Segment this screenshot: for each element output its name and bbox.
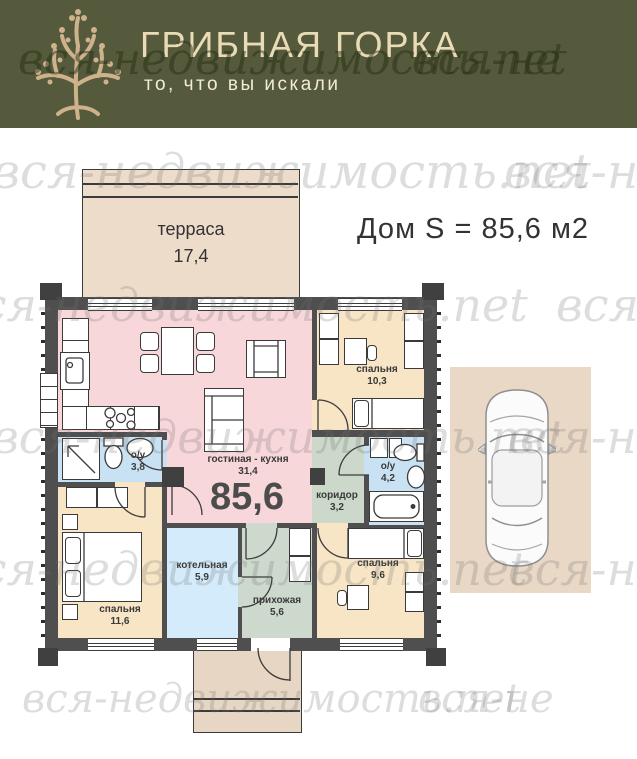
door-opening <box>364 445 369 475</box>
pillow <box>65 537 81 564</box>
wall-post <box>40 283 62 300</box>
dining-table <box>161 327 194 375</box>
room-area: 3,2 <box>316 502 358 514</box>
pillow <box>65 570 81 597</box>
pillow <box>407 530 422 557</box>
site-subtitle: то, что вы искали <box>144 74 341 96</box>
room-area: 3,8 <box>131 462 145 474</box>
desk <box>344 338 367 365</box>
washing-machine <box>370 438 388 458</box>
bathtub <box>369 491 424 522</box>
room-name: прихожая <box>253 595 301 607</box>
nightstand <box>62 604 78 620</box>
room-name: о/у <box>381 461 395 473</box>
door-opening <box>312 437 317 468</box>
porch-area <box>193 649 302 733</box>
wall-pillar <box>310 468 325 485</box>
total-area-label: 85,6 <box>210 476 284 519</box>
car-icon <box>478 386 556 570</box>
door-opening <box>312 400 317 430</box>
room-name: гостиная - кухня <box>207 454 288 466</box>
room-area: 10,3 <box>356 376 398 388</box>
terrace-area-value: 17,4 <box>173 246 208 267</box>
door-opening <box>238 577 242 607</box>
room-area: 5,6 <box>253 607 301 619</box>
room-label-corridor: коридор 3,2 <box>316 490 358 514</box>
plan-title: Дом S = 85,6 м2 <box>332 213 614 246</box>
room-label-hall: прихожая 5,6 <box>253 595 301 619</box>
chair <box>337 590 347 606</box>
chair <box>367 345 377 361</box>
room-name: коридор <box>316 490 358 502</box>
room-label-boiler: котельная 5,9 <box>176 560 227 584</box>
pillow <box>354 400 369 427</box>
room-label-living: гостиная - кухня 31,4 <box>207 454 288 478</box>
terrace-edge-line <box>83 196 298 198</box>
wall-post <box>38 648 58 666</box>
terrace-edge-line <box>83 183 298 185</box>
room-label-bedroom-10-3: спальня 10,3 <box>356 364 398 388</box>
room-label-bedroom-9-6: спальня 9,6 <box>357 558 399 582</box>
window <box>88 638 154 651</box>
window <box>340 638 403 651</box>
nightstand <box>62 514 78 530</box>
room-label-bedroom-11-6: спальня 11,6 <box>99 604 141 628</box>
watermark-fragment: вся-не <box>504 144 637 200</box>
room-label-bathroom-3-8: о/у 3,8 <box>131 450 145 474</box>
room-name: спальня <box>357 558 399 570</box>
window <box>198 298 294 311</box>
wardrobe <box>66 487 97 508</box>
door-opening <box>246 523 277 528</box>
porch-step-line <box>194 710 300 712</box>
header-banner: ГРИБНАЯ ГОРКА то, что вы искали <box>0 0 637 128</box>
armchair <box>246 340 286 378</box>
kitchen-sink <box>60 352 90 390</box>
wardrobe <box>404 341 424 369</box>
watermark-fragment: вся-не <box>556 278 637 332</box>
chair <box>196 332 215 351</box>
wardrobe <box>97 487 128 508</box>
cabinet <box>389 438 402 458</box>
wardrobe <box>405 592 424 612</box>
room-name: спальня <box>356 364 398 376</box>
wall-post <box>422 283 444 300</box>
terrace-label: терраса <box>157 219 224 240</box>
wall-ticks <box>41 312 45 640</box>
chair <box>196 354 215 373</box>
wardrobe <box>405 572 424 592</box>
desk <box>347 585 369 610</box>
wall-pillar <box>162 467 184 487</box>
room-area: 5,9 <box>176 572 227 584</box>
chair <box>140 332 159 351</box>
room-area: 4,2 <box>381 473 395 485</box>
site-title: ГРИБНАЯ ГОРКА <box>140 24 459 66</box>
window <box>338 298 402 311</box>
wall-post <box>426 648 446 666</box>
window <box>197 638 237 651</box>
door-opening <box>162 440 167 470</box>
entrance-door-opening <box>251 638 290 651</box>
shower-tray <box>62 438 100 480</box>
wall-ticks <box>437 312 441 640</box>
sofa <box>204 388 244 452</box>
kitchen-counter <box>62 406 160 430</box>
watermark-fragment: вся-не <box>418 676 554 722</box>
wardrobe <box>319 339 339 365</box>
room-name: спальня <box>99 604 141 616</box>
chair <box>140 354 159 373</box>
wardrobe <box>404 313 424 341</box>
tree-logo-icon <box>28 6 128 122</box>
hall-cabinet <box>289 556 311 582</box>
window <box>88 298 152 311</box>
room-name: котельная <box>176 560 227 572</box>
room-area: 9,6 <box>357 570 399 582</box>
room-label-bathroom-4-2: о/у 4,2 <box>381 461 395 485</box>
chimney-flue <box>40 373 58 428</box>
door-opening <box>317 523 348 528</box>
room-name: о/у <box>131 450 145 462</box>
wardrobe <box>319 313 339 339</box>
porch-step-line <box>194 698 300 700</box>
room-area: 11,6 <box>99 616 141 628</box>
hall-cabinet <box>289 528 311 556</box>
